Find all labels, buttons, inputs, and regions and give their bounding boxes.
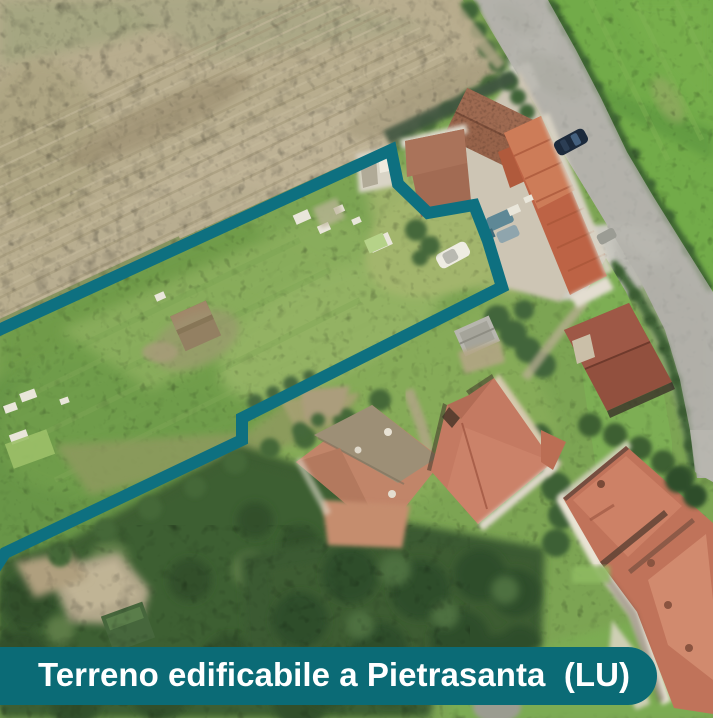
svg-text:Terreno edificabile a Pietrasa: Terreno edificabile a Pietrasanta (LU) (38, 656, 630, 693)
